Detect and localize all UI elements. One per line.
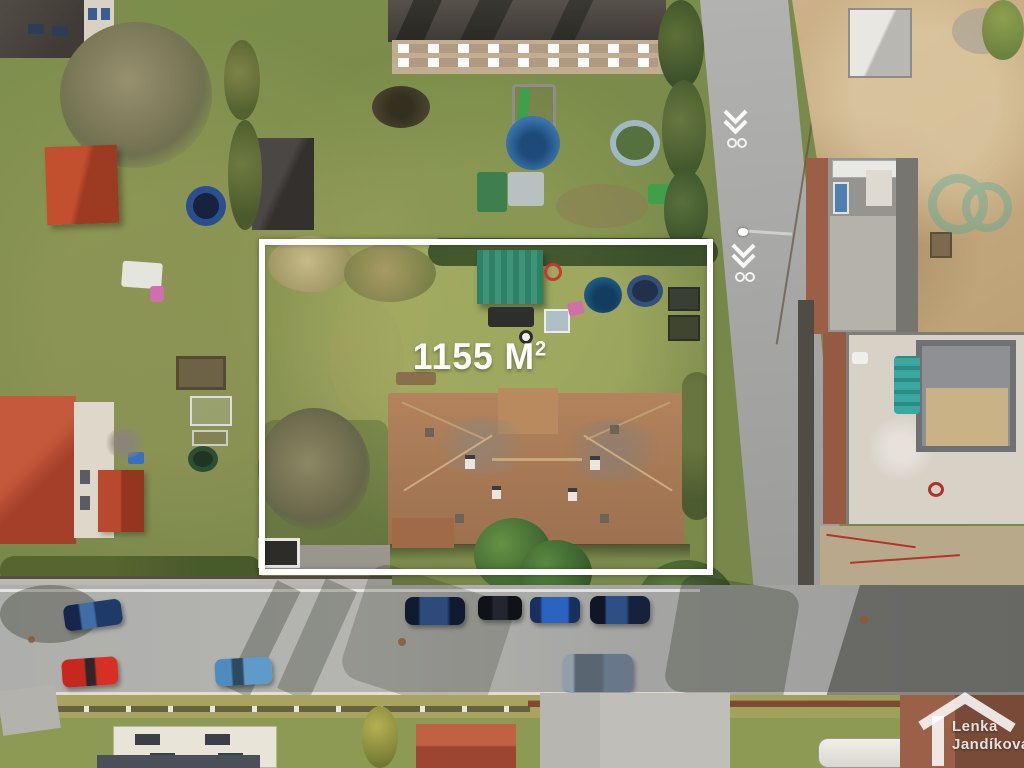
garden-clutter — [104, 428, 146, 458]
aerial-photo: 1155 M2 Lenka Jandíková — [0, 0, 1024, 768]
building-a-dark-section — [896, 158, 918, 334]
manhole — [860, 616, 868, 624]
topright-grass — [982, 0, 1024, 60]
parked-car-black — [478, 596, 522, 620]
topleft-house-window — [101, 8, 110, 20]
manhole — [28, 636, 35, 643]
bare-soil-patch — [556, 184, 648, 228]
teal-watermark-mark — [926, 168, 1008, 234]
roof-skylight — [135, 734, 160, 745]
parked-car-lightblue — [214, 657, 272, 687]
red-outbuilding — [98, 470, 144, 532]
white-post-fence — [0, 706, 530, 712]
manhole — [398, 638, 406, 646]
caravan — [818, 738, 910, 768]
left-house-window — [80, 496, 90, 510]
building-b-inner-sand — [926, 388, 1008, 446]
hedge — [224, 40, 260, 120]
bicycle-wheel-icon — [737, 138, 747, 148]
parked-car-navy — [590, 596, 650, 624]
building-a-blue-panel — [833, 182, 849, 214]
plot-boundary-outline — [259, 239, 713, 575]
roof-skylight — [28, 24, 44, 34]
garden-trampoline — [188, 446, 218, 472]
guardrail-wall — [798, 300, 814, 588]
parked-car-blue — [530, 597, 580, 623]
dark-panel-roof — [97, 755, 260, 768]
bicycle-marking — [727, 136, 745, 146]
area-label: 1155 M2 — [389, 336, 571, 378]
path-corner — [0, 684, 61, 736]
pallet-stack — [930, 232, 952, 258]
blue-trampoline — [186, 186, 226, 226]
teal-ring-icon — [962, 182, 1012, 232]
gray-tarp — [508, 172, 544, 206]
topleft-house-window — [88, 8, 97, 20]
covered-pool — [506, 116, 560, 170]
bicycle-wheel-icon — [745, 272, 755, 282]
road-chevron-marking — [733, 238, 753, 258]
raised-bed — [176, 356, 226, 390]
hedge — [228, 120, 262, 230]
building-a-white-panels — [866, 170, 892, 206]
area-superscript: 2 — [535, 338, 547, 361]
tree-shadow-on-road — [663, 572, 802, 709]
bicycle-marking — [735, 270, 753, 280]
pink-toy — [150, 286, 164, 302]
roof-skylight — [205, 734, 230, 745]
red-bucket — [928, 482, 944, 497]
footpath — [540, 693, 600, 768]
left-house-window — [80, 470, 90, 484]
greenhouse-frame — [190, 396, 232, 426]
watermark-name-line1: Lenka — [952, 718, 998, 735]
green-tarp — [477, 172, 507, 212]
left-house-red-roof — [0, 396, 76, 544]
parked-van-gray — [563, 654, 633, 692]
compost-pit — [372, 86, 430, 128]
watermark: Lenka Jandíková — [915, 688, 1021, 766]
watermark-name-line2: Jandíková — [952, 736, 1024, 753]
roadside-tree — [658, 0, 704, 90]
road-chevron-marking — [725, 104, 745, 124]
parked-car-navy — [405, 597, 465, 625]
conifer-tree — [362, 706, 398, 768]
round-pool-green-water — [610, 120, 660, 166]
greenhouse-frame — [192, 430, 228, 446]
red-cabin-roof — [45, 145, 120, 225]
bicycle-wheel-icon — [735, 272, 745, 282]
building-shadow-on-road — [826, 585, 1024, 697]
building-a-courtyard — [830, 216, 896, 330]
street-lamp-head — [738, 228, 748, 236]
white-sack — [852, 352, 868, 364]
small-shed-topright — [848, 8, 912, 78]
apartment-window-row — [398, 58, 658, 67]
footpath-wide — [600, 693, 730, 768]
parked-car-red — [61, 656, 119, 688]
area-value: 1155 M — [413, 336, 535, 377]
roof-skylight — [52, 26, 68, 36]
insulation-packs — [894, 356, 920, 414]
roadside-tree — [662, 80, 706, 180]
apartment-window-row — [398, 44, 658, 53]
terracotta-house-bottom — [416, 724, 516, 768]
bicycle-wheel-icon — [727, 138, 737, 148]
